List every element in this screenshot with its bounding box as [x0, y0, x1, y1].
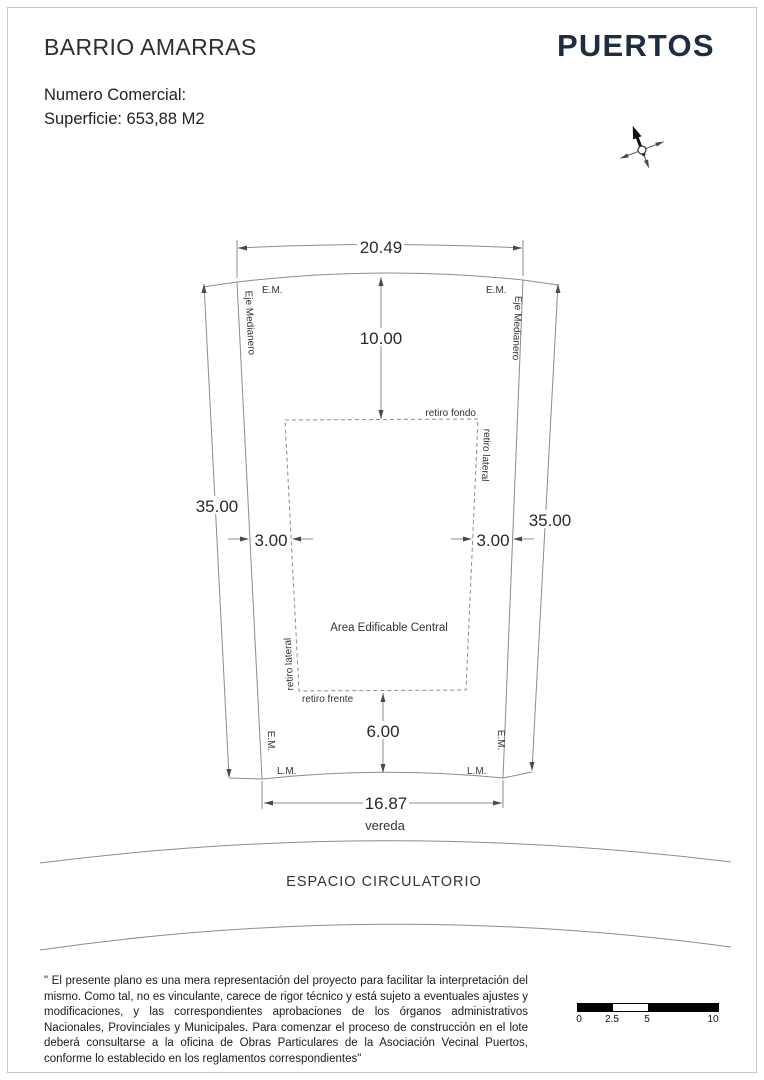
dimension-top-width: 20.49	[237, 237, 523, 278]
dim-depth-left-label: 35.00	[196, 497, 239, 516]
em-label-top-left: E.M.	[262, 285, 283, 296]
lot-boundary	[237, 273, 523, 779]
circulation-area: ESPACIO CIRCULATORIO	[40, 841, 731, 950]
dimension-rear-setback: 10.00	[358, 277, 404, 419]
plan-sheet: BARRIO AMARRAS Numero Comercial: Superfi…	[0, 0, 764, 1080]
compass-icon	[610, 117, 671, 177]
retiro-lateral-right-label: retiro lateral	[479, 428, 492, 481]
eje-medianero-right-label: Eje Medianero	[510, 296, 524, 361]
area-edificable-label: Area Edificable Central	[330, 622, 448, 634]
dimension-front-width: 16.87 vereda	[262, 780, 503, 833]
dim-front-width-label: 16.87	[365, 794, 408, 813]
dimension-depth-left: 35.00	[196, 282, 262, 779]
scale-bar: 0 2.5 5 10	[577, 1003, 717, 1029]
dimension-side-setback-right: 3.00	[451, 531, 534, 550]
scale-bar-graphic	[577, 1003, 719, 1012]
retiro-lateral-left-label: retiro lateral	[283, 637, 297, 690]
em-label-top-right: E.M.	[486, 285, 507, 296]
scale-segment-2	[613, 1004, 648, 1011]
retiro-frente-label: retiro frente	[302, 694, 354, 705]
em-label-bottom-right: E.M.	[495, 730, 506, 751]
dim-top-width-label: 20.49	[360, 238, 403, 257]
scale-segment-1	[578, 1004, 613, 1011]
dim-side-setback-left-label: 3.00	[254, 531, 287, 550]
dim-rear-setback-label: 10.00	[360, 329, 403, 348]
buildable-area-outline	[285, 419, 478, 691]
dim-depth-right-label: 35.00	[529, 511, 572, 530]
lm-label-right: L.M.	[467, 766, 486, 777]
scale-tick-0: 0	[576, 1014, 582, 1025]
eje-medianero-left-label: Eje Medianero	[242, 290, 256, 355]
scale-segment-3	[648, 1004, 718, 1011]
dimension-front-setback: 6.00	[362, 693, 404, 773]
disclaimer-text: " El presente plano es una mera represen…	[44, 974, 528, 1068]
scale-tick-5: 5	[644, 1014, 650, 1025]
dim-side-setback-right-label: 3.00	[476, 531, 509, 550]
lm-label-left: L.M.	[277, 766, 296, 777]
espacio-circulatorio-label: ESPACIO CIRCULATORIO	[286, 874, 482, 890]
vereda-label: vereda	[365, 818, 406, 833]
dim-front-setback-label: 6.00	[366, 722, 399, 741]
em-label-bottom-left: E.M.	[265, 731, 276, 752]
scale-tick-25: 2.5	[605, 1014, 619, 1025]
scale-tick-10: 10	[707, 1014, 718, 1025]
dimension-side-setback-left: 3.00	[228, 531, 313, 550]
site-plan-drawing: 20.49 35.00 35.00 10.0	[0, 0, 764, 1080]
retiro-fondo-label: retiro fondo	[425, 408, 476, 419]
